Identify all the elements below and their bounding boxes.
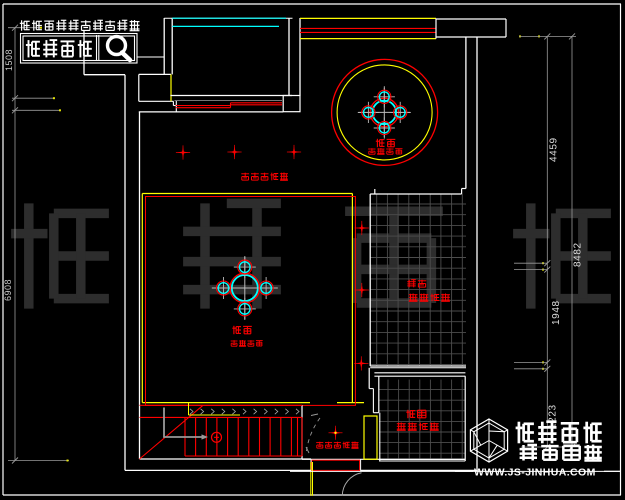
svg-text:4459: 4459	[549, 137, 560, 162]
svg-text:1508: 1508	[4, 49, 14, 71]
svg-text:8482: 8482	[573, 242, 584, 267]
svg-text:WWW.JS-JINHUA.COM: WWW.JS-JINHUA.COM	[474, 467, 596, 479]
svg-text:6908: 6908	[3, 279, 13, 301]
svg-text:1948: 1948	[551, 300, 562, 325]
